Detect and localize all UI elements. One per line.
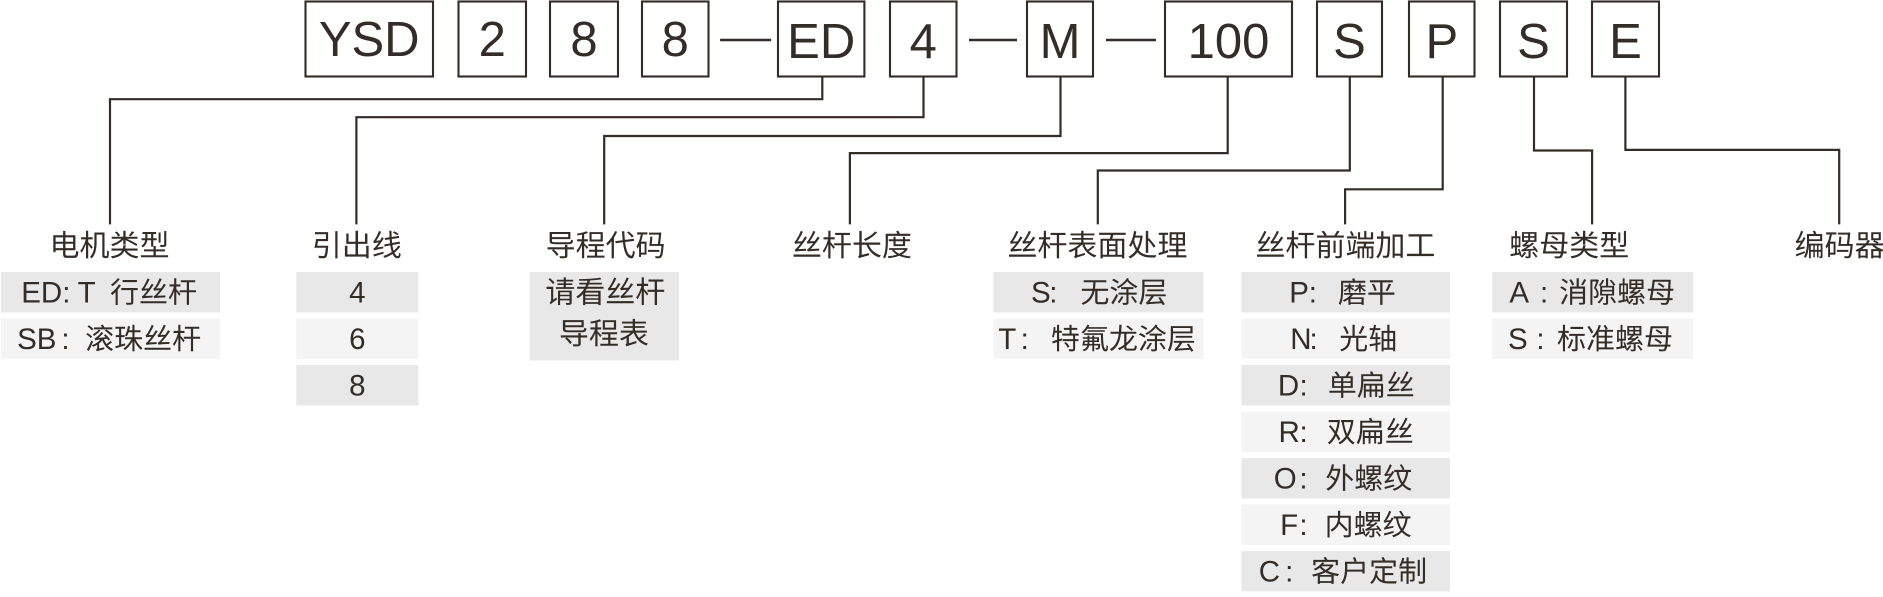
svg-text:P: P: [1289, 277, 1309, 310]
svg-text::: :: [1049, 277, 1057, 310]
svg-text::: :: [1300, 370, 1308, 403]
svg-text::: :: [1285, 556, 1293, 589]
svg-text:F: F: [1280, 509, 1298, 542]
svg-text:S: S: [1508, 323, 1528, 356]
svg-text:S: S: [1333, 15, 1366, 69]
svg-text::: :: [62, 277, 70, 310]
svg-text:T: T: [998, 323, 1016, 356]
svg-text::: :: [1540, 277, 1548, 310]
svg-text::: :: [1300, 416, 1308, 449]
svg-text:C: C: [1259, 556, 1280, 589]
svg-text:M: M: [1040, 15, 1081, 69]
svg-text::: :: [1536, 323, 1544, 356]
svg-text:4: 4: [910, 15, 937, 69]
svg-text::: :: [1299, 509, 1307, 542]
svg-text:6: 6: [349, 323, 365, 356]
svg-text:N: N: [1290, 323, 1311, 356]
svg-text:S: S: [1031, 277, 1051, 310]
svg-text:8: 8: [349, 370, 365, 403]
svg-text:ED: ED: [21, 277, 62, 310]
svg-text:D: D: [1278, 370, 1299, 403]
svg-text:YSD: YSD: [319, 13, 420, 67]
svg-text:T: T: [78, 277, 96, 310]
svg-text::: :: [1021, 323, 1029, 356]
svg-text:ED: ED: [787, 15, 855, 69]
svg-text:R: R: [1279, 416, 1300, 449]
svg-text::: :: [1299, 463, 1307, 496]
svg-text:SB: SB: [17, 323, 56, 356]
svg-text:4: 4: [349, 277, 365, 310]
svg-text::: :: [61, 323, 69, 356]
svg-text:O: O: [1274, 463, 1297, 496]
svg-text:E: E: [1609, 15, 1642, 69]
svg-text:100: 100: [1188, 15, 1270, 69]
svg-text:8: 8: [662, 13, 689, 67]
svg-text::: :: [1309, 277, 1317, 310]
svg-text:P: P: [1425, 15, 1458, 69]
svg-text:2: 2: [479, 13, 506, 67]
svg-text:S: S: [1517, 15, 1550, 69]
svg-text::: :: [1310, 323, 1318, 356]
svg-text:8: 8: [570, 13, 597, 67]
svg-text:A: A: [1509, 277, 1529, 310]
